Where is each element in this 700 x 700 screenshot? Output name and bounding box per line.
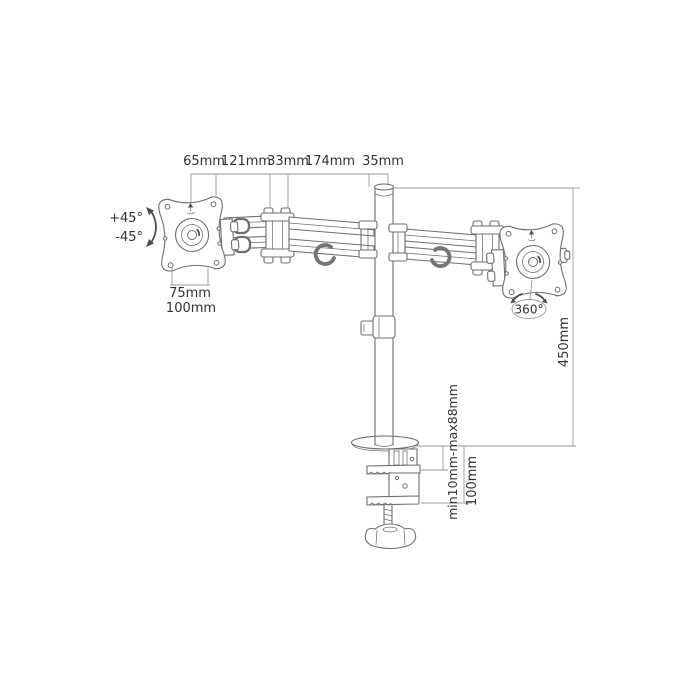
adjust-knob bbox=[361, 321, 374, 335]
dim-label-33mm: 33mm bbox=[267, 154, 309, 169]
rotation-label: 360° bbox=[515, 303, 544, 317]
tilt-down-label: -45° bbox=[115, 230, 143, 245]
dim-label-clamp-depth: 100mm bbox=[465, 456, 480, 506]
screw-hole bbox=[165, 204, 170, 209]
dim-label-65mm: 65mm bbox=[183, 154, 225, 169]
monitor-arm-diagram: 65mm 121mm 33mm 174mm 35mm 450mm min10mm… bbox=[0, 0, 700, 700]
tilt-up-label: +45° bbox=[109, 211, 143, 226]
left-arm-elbow-joint bbox=[261, 208, 294, 263]
pivot-center-hole bbox=[528, 257, 537, 266]
pole-top-cap bbox=[375, 184, 394, 190]
clamp-top-plate bbox=[352, 436, 419, 449]
screw-hole bbox=[555, 287, 560, 292]
screw-hole bbox=[552, 229, 557, 234]
pivot-center-hole bbox=[187, 230, 196, 239]
dim-label-vesa75: 75mm bbox=[169, 286, 211, 301]
dim-label-35mm: 35mm bbox=[362, 154, 404, 169]
screw-hole bbox=[211, 202, 216, 207]
screw-hole bbox=[509, 290, 514, 295]
dim-label-174mm: 174mm bbox=[305, 154, 355, 169]
screw-hole bbox=[214, 260, 219, 265]
dim-label-vesa100: 100mm bbox=[166, 301, 216, 316]
screw-hole bbox=[168, 263, 173, 268]
dim-label-desk-thickness: min10mm-max88mm bbox=[445, 384, 460, 520]
screw-hole bbox=[506, 231, 511, 236]
dim-label-121mm: 121mm bbox=[221, 154, 271, 169]
clamp-bottom-flange bbox=[367, 496, 419, 505]
dim-label-450mm: 450mm bbox=[557, 317, 572, 367]
canvas-background bbox=[0, 0, 700, 700]
